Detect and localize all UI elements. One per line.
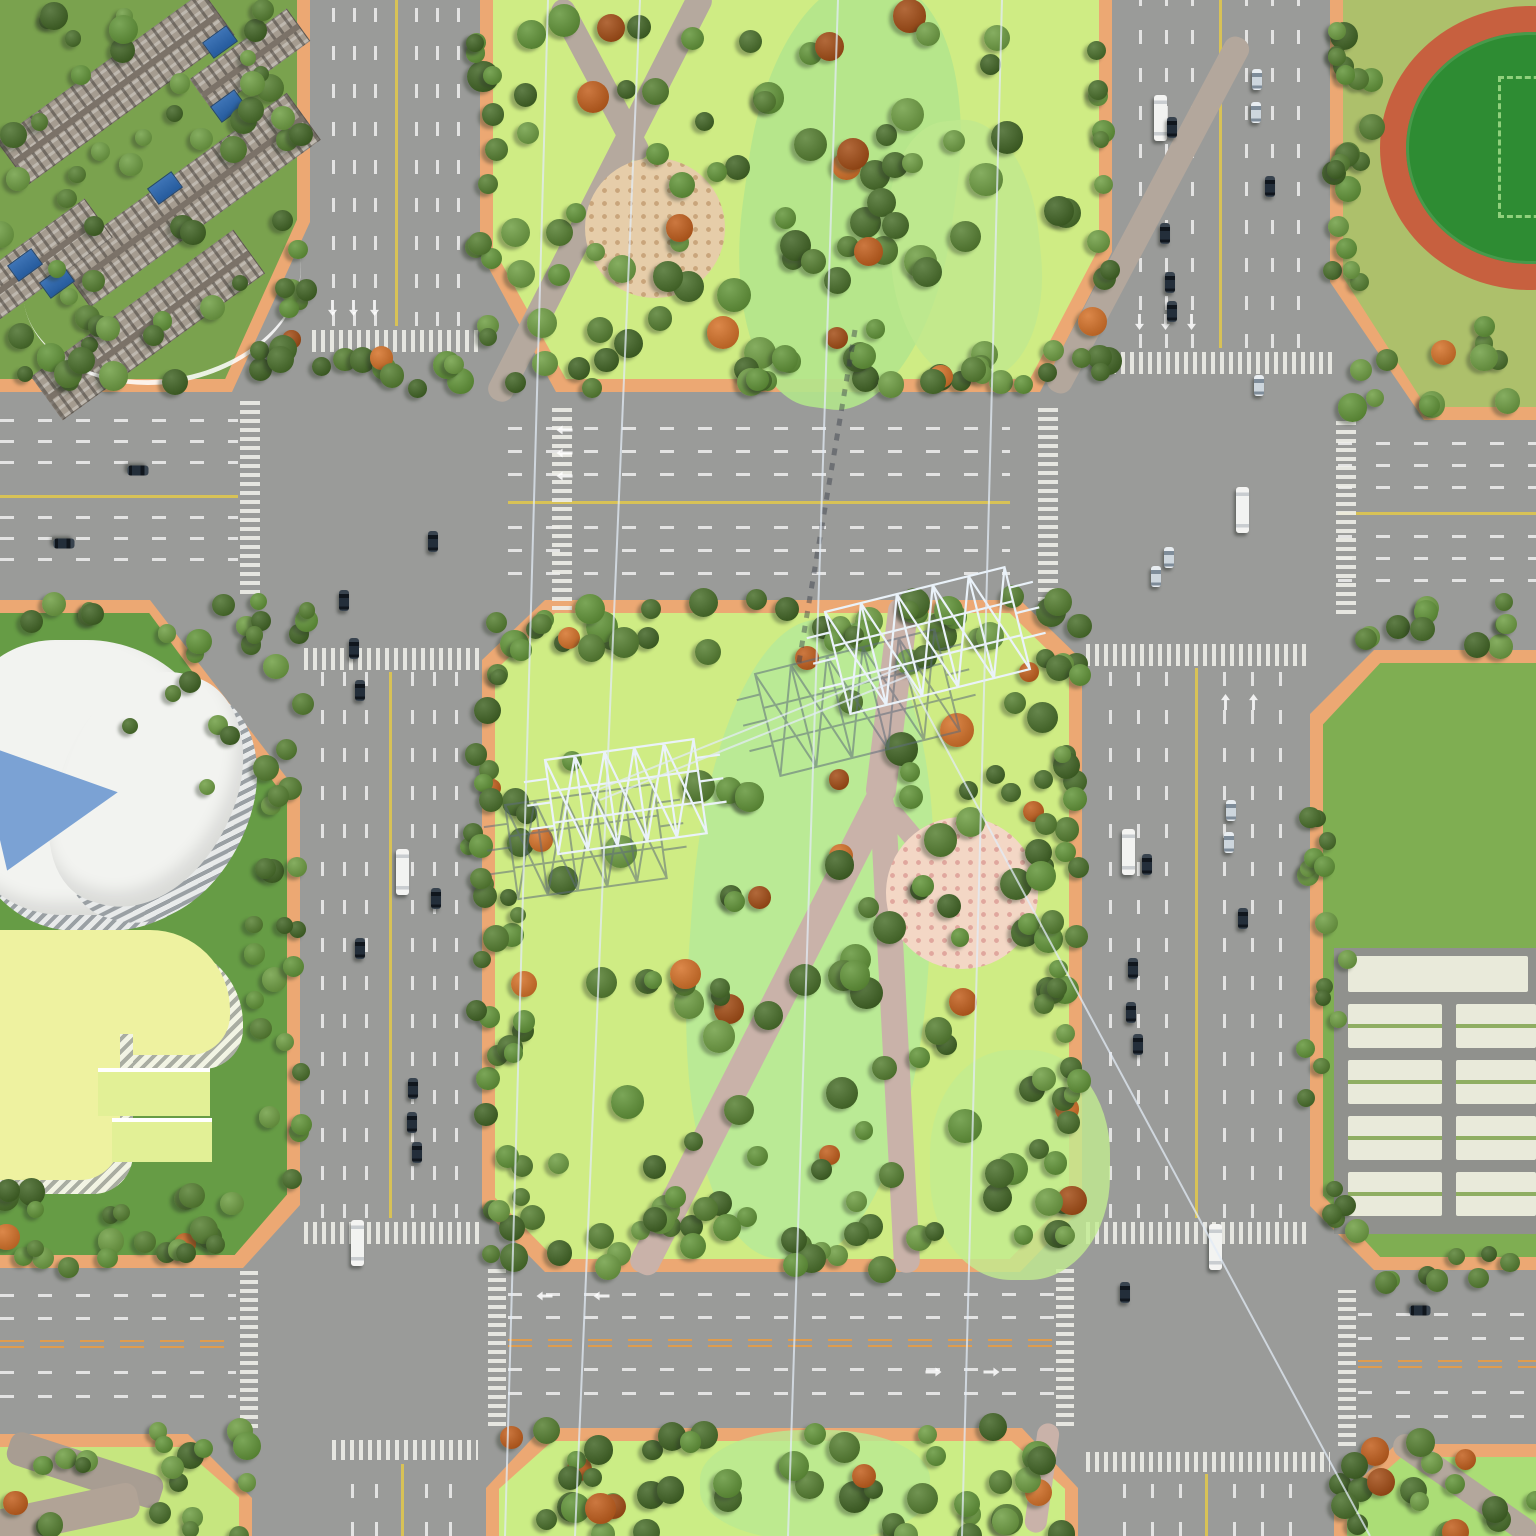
tree: [253, 755, 279, 781]
tree: [855, 1121, 873, 1139]
tree: [588, 1223, 614, 1249]
tree: [233, 1432, 261, 1460]
lane-marking: [425, 1464, 428, 1536]
tree: [1350, 359, 1372, 381]
crosswalk: [240, 398, 260, 594]
tree: [669, 172, 695, 198]
tree: [65, 30, 81, 46]
tree: [60, 288, 78, 306]
tree: [1331, 1492, 1358, 1519]
lane-marking: [1179, 1474, 1182, 1536]
lane-arrow: [328, 300, 337, 316]
tree: [925, 1222, 944, 1241]
vehicle-car[interactable]: [407, 1112, 417, 1133]
tree: [75, 1457, 91, 1473]
tree: [548, 866, 578, 896]
tree: [276, 739, 297, 760]
crosswalk: [552, 408, 572, 610]
tree: [272, 210, 293, 231]
tree: [511, 971, 537, 997]
stadium-field-outline: [1498, 76, 1536, 218]
vehicle-bus[interactable]: [1122, 829, 1135, 875]
yellow-building-terrace: [98, 1068, 210, 1116]
tree: [81, 603, 103, 625]
yellow-building-terrace: [112, 1118, 212, 1162]
lane-arrow: [1187, 314, 1196, 330]
lane-marking: [508, 526, 1010, 529]
tree: [532, 351, 557, 376]
parking-row: [1348, 1060, 1442, 1104]
tree: [815, 32, 844, 61]
lane-marking: [1271, 0, 1274, 348]
crosswalk: [1112, 352, 1332, 374]
lane-marking: [1279, 668, 1282, 1218]
tree: [1474, 316, 1495, 337]
tree: [84, 216, 104, 236]
tree: [845, 626, 864, 645]
tree: [97, 1248, 118, 1269]
tree: [478, 174, 498, 194]
tree: [134, 1231, 156, 1253]
lane-marking: [433, 672, 436, 1218]
tree: [1488, 634, 1513, 659]
lane-arrow: [349, 300, 358, 316]
vehicle-car[interactable]: [128, 465, 149, 475]
tree: [1069, 664, 1091, 686]
lane-marking: [1338, 557, 1536, 560]
tree: [1330, 1011, 1347, 1028]
tree: [1014, 375, 1033, 394]
tree: [1495, 593, 1513, 611]
tree: [844, 1222, 868, 1246]
tree: [1067, 614, 1091, 638]
lane-marking: [508, 549, 1010, 552]
tree: [483, 925, 509, 951]
vehicle-bus[interactable]: [1236, 487, 1249, 533]
lane-marking: [1297, 0, 1300, 348]
tree: [548, 1153, 569, 1174]
tree: [575, 594, 605, 624]
lane-marking: [508, 473, 1010, 476]
tree: [846, 1191, 867, 1212]
tree: [531, 614, 552, 635]
parking-row: [1348, 1004, 1442, 1048]
tree: [608, 255, 636, 283]
tree: [548, 264, 570, 286]
tree: [99, 361, 129, 391]
tree: [980, 54, 1001, 75]
center-line-yellow: [1205, 1474, 1208, 1536]
tree: [1468, 1268, 1489, 1289]
tree: [155, 1436, 173, 1454]
tree: [473, 951, 490, 968]
tree: [866, 319, 886, 339]
tree: [1336, 238, 1357, 259]
vehicle-car[interactable]: [1251, 102, 1261, 123]
tree: [1345, 1219, 1369, 1243]
tree: [925, 1017, 952, 1044]
tree: [238, 1473, 257, 1492]
tree: [746, 589, 767, 610]
tree: [961, 357, 985, 381]
tree: [811, 1159, 832, 1180]
tree: [1470, 344, 1498, 372]
tree: [1029, 1139, 1049, 1159]
tree: [583, 1468, 602, 1487]
tree: [707, 316, 740, 349]
vehicle-car[interactable]: [1167, 117, 1177, 138]
tree: [547, 1240, 572, 1265]
tree: [513, 1010, 535, 1032]
lane-marking: [1338, 486, 1536, 489]
tree: [1046, 655, 1072, 681]
vehicle-car[interactable]: [1120, 1282, 1130, 1303]
lane-marking: [1191, 0, 1194, 348]
tree: [937, 894, 961, 918]
tree: [182, 1521, 200, 1536]
tree: [1343, 261, 1360, 278]
lane-marking: [508, 1368, 1054, 1371]
tree: [617, 80, 636, 99]
lane-marking: [374, 0, 377, 326]
crosswalk: [488, 1268, 506, 1426]
tree: [1375, 1271, 1398, 1294]
tree: [1067, 1069, 1090, 1092]
tree: [878, 371, 904, 397]
tree: [948, 1109, 982, 1143]
center-line-orange: [508, 1345, 1054, 1347]
lane-marking: [508, 450, 1010, 453]
tree: [1054, 746, 1070, 762]
tree: [1319, 832, 1337, 850]
tree: [1426, 1269, 1449, 1292]
tree: [287, 857, 307, 877]
crosswalk: [1086, 1222, 1310, 1244]
tree: [1299, 807, 1320, 828]
lane-marking: [1223, 668, 1226, 1218]
tree: [912, 257, 942, 287]
vehicle-car[interactable]: [1226, 800, 1236, 821]
lane-marking: [1123, 1474, 1126, 1536]
parking-row: [1456, 1172, 1536, 1216]
tree: [517, 122, 539, 144]
city-aerial-viewport[interactable]: [0, 0, 1536, 1536]
tree: [644, 971, 662, 989]
lane-marking: [457, 0, 460, 326]
tree: [979, 1413, 1007, 1441]
tree: [1376, 349, 1398, 371]
tree: [296, 279, 318, 301]
vehicle-car[interactable]: [339, 590, 349, 611]
tree: [586, 243, 604, 261]
tree: [1044, 588, 1072, 616]
vehicle-bus[interactable]: [396, 849, 409, 895]
tree: [166, 105, 183, 122]
tree: [876, 124, 898, 146]
tree: [779, 1451, 809, 1481]
tree: [486, 612, 507, 633]
tree: [380, 363, 404, 387]
tree: [40, 2, 68, 30]
vehicle-car[interactable]: [1167, 301, 1177, 322]
vehicle-car[interactable]: [412, 1142, 422, 1163]
vehicle-car[interactable]: [1160, 223, 1170, 244]
tree: [909, 1047, 929, 1067]
tree: [637, 627, 659, 649]
tree: [959, 781, 978, 800]
vehicle-car[interactable]: [428, 531, 438, 552]
vehicle-bus[interactable]: [351, 1220, 364, 1266]
tree: [1455, 1449, 1476, 1470]
lane-marking: [1251, 668, 1254, 1218]
tree: [1322, 1204, 1342, 1224]
tree: [868, 1256, 896, 1284]
tree: [527, 308, 557, 338]
vehicle-car[interactable]: [1128, 958, 1138, 979]
tree: [1500, 1253, 1519, 1272]
tree: [725, 155, 750, 180]
lane-marking: [1151, 1474, 1154, 1536]
tree: [33, 1456, 53, 1476]
tree: [466, 34, 484, 52]
tree: [1386, 615, 1410, 639]
tree: [595, 1254, 621, 1280]
tree: [825, 850, 855, 880]
tree: [1026, 861, 1056, 891]
lane-marking: [1137, 668, 1140, 1218]
lane-marking: [1358, 1313, 1536, 1316]
vehicle-car[interactable]: [1252, 69, 1262, 90]
tree: [500, 1243, 529, 1272]
tree: [582, 378, 602, 398]
vehicle-bus[interactable]: [1209, 1224, 1222, 1270]
tree: [292, 693, 314, 715]
tree: [1313, 1058, 1329, 1074]
vehicle-car[interactable]: [1164, 547, 1174, 568]
lane-marking: [0, 419, 238, 422]
vehicle-car[interactable]: [1224, 832, 1234, 853]
lane-marking: [1358, 1337, 1536, 1340]
tree: [1027, 1446, 1056, 1475]
tree: [488, 1200, 509, 1221]
tree: [839, 690, 862, 713]
lane-marking: [1338, 535, 1536, 538]
tree: [267, 346, 294, 373]
tree: [1055, 817, 1079, 841]
crosswalk: [304, 1222, 480, 1244]
tree: [916, 22, 940, 46]
tree: [255, 858, 276, 879]
tree: [1481, 1246, 1497, 1262]
tree: [529, 827, 554, 852]
tree: [642, 78, 669, 105]
tree: [1410, 1492, 1429, 1511]
tree: [246, 991, 265, 1010]
tree: [772, 345, 798, 371]
lane-marking: [353, 0, 356, 326]
tree: [585, 1493, 616, 1524]
tree: [587, 317, 613, 343]
tree: [31, 113, 48, 130]
tree: [165, 685, 182, 702]
center-line-yellow: [1338, 512, 1536, 515]
tree: [275, 278, 295, 298]
tree: [1482, 1496, 1508, 1522]
tree: [408, 379, 427, 398]
center-line-orange: [1358, 1366, 1536, 1368]
tree: [850, 343, 876, 369]
lane-marking: [343, 672, 346, 1218]
tree: [485, 138, 508, 161]
vehicle-car[interactable]: [1410, 1305, 1431, 1315]
tree: [474, 1103, 497, 1126]
tree: [179, 1183, 204, 1208]
vehicle-car[interactable]: [355, 680, 365, 701]
tree: [641, 599, 661, 619]
tree: [611, 1085, 644, 1118]
tree: [578, 634, 605, 661]
tree: [943, 130, 965, 152]
tree: [1014, 1225, 1033, 1244]
tree: [1094, 175, 1113, 194]
tree: [912, 875, 934, 897]
tree: [536, 1509, 557, 1530]
tree: [1406, 1428, 1435, 1457]
lane-marking: [508, 1392, 1054, 1395]
vehicle-car[interactable]: [349, 638, 359, 659]
tree: [479, 788, 503, 812]
lane-marking: [1261, 1474, 1264, 1536]
tree: [568, 357, 591, 380]
vehicle-car[interactable]: [1142, 854, 1152, 875]
vehicle-car[interactable]: [1254, 375, 1264, 396]
tree: [1338, 393, 1366, 421]
tree: [180, 220, 206, 246]
vehicle-car[interactable]: [54, 538, 75, 548]
lane-marking: [0, 516, 238, 519]
vehicle-car[interactable]: [1165, 272, 1175, 293]
tree: [684, 1132, 703, 1151]
vehicle-car[interactable]: [1126, 1002, 1136, 1023]
lane-marking: [1358, 1415, 1536, 1418]
parking-row: [1456, 1116, 1536, 1160]
lane-marking: [321, 672, 324, 1218]
parking-row: [1456, 1060, 1536, 1104]
vehicle-car[interactable]: [355, 938, 365, 959]
tree: [954, 1491, 980, 1517]
tree: [1314, 856, 1335, 877]
parking-row: [1348, 1116, 1442, 1160]
tree: [1328, 22, 1346, 40]
center-line-yellow: [0, 495, 238, 498]
tree: [232, 275, 248, 291]
lane-marking: [0, 440, 238, 443]
crosswalk: [1086, 1452, 1330, 1472]
tree: [926, 1446, 946, 1466]
tree: [1049, 960, 1067, 978]
lane-arrow: [1135, 314, 1144, 330]
vehicle-bus[interactable]: [1154, 95, 1167, 141]
tree: [517, 20, 545, 48]
tree: [546, 219, 573, 246]
tree: [244, 19, 267, 42]
tree: [91, 142, 110, 161]
tree: [516, 803, 537, 824]
tree: [713, 1469, 742, 1498]
tree: [1057, 1111, 1079, 1133]
lane-marking: [0, 461, 238, 464]
vehicle-car[interactable]: [431, 888, 441, 909]
crosswalk: [1336, 420, 1356, 614]
tree: [872, 1056, 897, 1081]
tree: [279, 299, 298, 318]
lane-marking: [1165, 668, 1168, 1218]
tree: [940, 713, 974, 747]
tree: [1065, 925, 1088, 948]
tree: [17, 366, 33, 382]
tree: [584, 1435, 614, 1465]
tree: [985, 1159, 1014, 1188]
tree: [934, 596, 963, 625]
tree: [1034, 994, 1054, 1014]
tree: [879, 1162, 904, 1187]
crosswalk: [1056, 1268, 1074, 1426]
vehicle-car[interactable]: [1151, 566, 1161, 587]
tree: [597, 14, 625, 42]
lane-marking: [0, 1395, 236, 1398]
tree: [829, 1432, 860, 1463]
tree: [58, 1257, 79, 1278]
tree: [956, 807, 985, 836]
tree: [900, 601, 918, 619]
vehicle-car[interactable]: [1133, 1034, 1143, 1055]
vehicle-car[interactable]: [1265, 176, 1275, 197]
center-line-yellow: [395, 0, 398, 326]
tree: [1100, 260, 1120, 280]
lane-marking: [449, 1464, 452, 1536]
center-line-orange: [1358, 1360, 1536, 1362]
tree: [250, 593, 267, 610]
tree: [194, 1439, 213, 1458]
vehicle-car[interactable]: [1238, 908, 1248, 929]
tree: [96, 316, 120, 340]
tree: [1055, 1226, 1075, 1246]
tree: [735, 782, 765, 812]
tree: [289, 123, 313, 147]
lane-marking: [1358, 1391, 1536, 1394]
tree: [657, 1476, 684, 1503]
vehicle-car[interactable]: [408, 1078, 418, 1099]
tree: [1410, 617, 1434, 641]
tree: [748, 886, 771, 909]
lane-marking: [455, 672, 458, 1218]
tree: [200, 295, 225, 320]
tree: [312, 357, 331, 376]
tree: [1366, 389, 1384, 407]
lane-marking: [411, 672, 414, 1218]
tree: [505, 372, 526, 393]
tree: [899, 785, 923, 809]
tree: [1041, 910, 1065, 934]
tree: [604, 835, 637, 868]
tree: [1341, 1452, 1368, 1479]
tree: [627, 15, 651, 39]
crosswalk: [312, 330, 478, 352]
tree: [220, 1192, 243, 1215]
tree: [754, 91, 776, 113]
tree: [496, 1145, 519, 1168]
center-line-yellow: [508, 501, 1010, 504]
